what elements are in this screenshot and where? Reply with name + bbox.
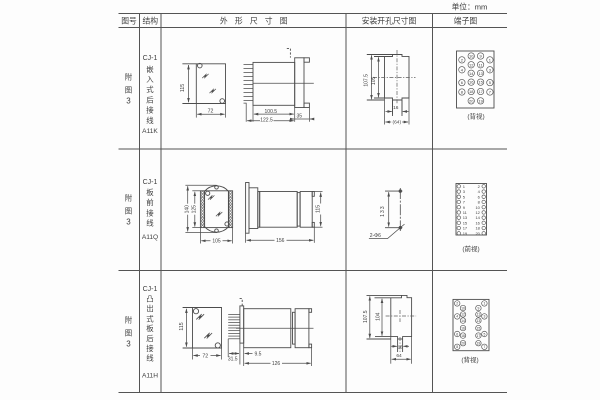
svg-text:图: 图 bbox=[125, 85, 132, 94]
svg-text:140: 140 bbox=[184, 205, 190, 214]
svg-text:附: 附 bbox=[125, 315, 133, 324]
svg-text:8: 8 bbox=[461, 90, 464, 95]
svg-text:2: 2 bbox=[456, 302, 458, 306]
svg-text:CJ-1: CJ-1 bbox=[143, 179, 158, 186]
svg-text:133: 133 bbox=[380, 205, 386, 217]
svg-text:72: 72 bbox=[202, 353, 208, 359]
svg-text:单位：mm: 单位：mm bbox=[452, 2, 488, 12]
svg-text:2: 2 bbox=[461, 57, 464, 62]
svg-text:17: 17 bbox=[478, 89, 483, 94]
svg-text:9: 9 bbox=[477, 306, 479, 310]
svg-text:11: 11 bbox=[477, 313, 481, 317]
svg-text:式: 式 bbox=[146, 314, 154, 323]
svg-text:图: 图 bbox=[125, 207, 132, 216]
svg-text:7: 7 bbox=[489, 90, 492, 95]
svg-text:31.5: 31.5 bbox=[228, 357, 238, 363]
svg-text:(前视): (前视) bbox=[462, 244, 479, 253]
svg-text:线: 线 bbox=[146, 354, 154, 363]
svg-text:115: 115 bbox=[179, 322, 185, 330]
svg-text:19: 19 bbox=[463, 231, 468, 236]
svg-text:13: 13 bbox=[477, 319, 481, 323]
svg-text:(背视): (背视) bbox=[461, 355, 478, 364]
svg-text:4: 4 bbox=[461, 67, 464, 72]
svg-text:16: 16 bbox=[461, 326, 465, 330]
svg-text:附: 附 bbox=[125, 194, 133, 203]
svg-text:前: 前 bbox=[146, 198, 153, 207]
svg-text:接: 接 bbox=[146, 106, 154, 115]
svg-text:A11Q: A11Q bbox=[142, 234, 158, 241]
svg-text:122.5: 122.5 bbox=[260, 117, 273, 123]
svg-text:3: 3 bbox=[489, 67, 492, 72]
svg-text:16: 16 bbox=[398, 344, 403, 349]
svg-text:19: 19 bbox=[478, 98, 483, 103]
svg-text:入: 入 bbox=[146, 75, 154, 84]
svg-text:105: 105 bbox=[212, 239, 221, 245]
svg-text:18: 18 bbox=[461, 334, 465, 338]
svg-text:12: 12 bbox=[469, 62, 474, 67]
svg-text:出: 出 bbox=[146, 304, 153, 313]
svg-text:8: 8 bbox=[456, 345, 458, 349]
svg-text:安装开孔尺寸图: 安装开孔尺寸图 bbox=[362, 15, 417, 25]
svg-text:115: 115 bbox=[316, 205, 322, 213]
svg-text:7: 7 bbox=[483, 345, 485, 349]
svg-text:18: 18 bbox=[469, 89, 474, 94]
svg-text:线: 线 bbox=[146, 219, 154, 228]
svg-text:图: 图 bbox=[125, 329, 132, 338]
svg-text:接: 接 bbox=[146, 208, 154, 217]
svg-text:6: 6 bbox=[461, 80, 464, 85]
svg-text:后: 后 bbox=[146, 95, 154, 104]
svg-text:3: 3 bbox=[483, 315, 485, 319]
svg-text:外 形 尺 寸 图: 外 形 尺 寸 图 bbox=[220, 15, 290, 25]
svg-text:20: 20 bbox=[469, 98, 474, 103]
svg-text:156: 156 bbox=[276, 238, 285, 244]
svg-text:16: 16 bbox=[469, 80, 474, 85]
svg-text:104: 104 bbox=[376, 312, 382, 321]
svg-text:后: 后 bbox=[146, 334, 154, 343]
svg-text:19: 19 bbox=[477, 342, 481, 346]
svg-text:125: 125 bbox=[192, 205, 198, 214]
svg-text:115: 115 bbox=[180, 84, 186, 92]
svg-text:图号: 图号 bbox=[121, 16, 137, 25]
svg-text:9.5: 9.5 bbox=[255, 351, 262, 357]
svg-text:12: 12 bbox=[461, 313, 465, 317]
svg-text:14: 14 bbox=[469, 71, 474, 76]
svg-text:接: 接 bbox=[146, 344, 154, 353]
svg-text:结构: 结构 bbox=[143, 15, 159, 25]
svg-text:3: 3 bbox=[126, 340, 131, 349]
svg-text:6: 6 bbox=[456, 332, 458, 336]
svg-text:板: 板 bbox=[146, 188, 154, 197]
svg-text:CJ-1: CJ-1 bbox=[143, 286, 158, 293]
svg-text:13: 13 bbox=[478, 71, 483, 76]
svg-text:72: 72 bbox=[208, 109, 214, 115]
svg-text:式: 式 bbox=[146, 85, 154, 94]
svg-text:2-Φ6: 2-Φ6 bbox=[370, 233, 381, 239]
svg-text:嵌: 嵌 bbox=[146, 65, 154, 74]
svg-text:17: 17 bbox=[477, 334, 481, 338]
svg-text:126: 126 bbox=[272, 361, 281, 367]
svg-text:3: 3 bbox=[126, 96, 131, 105]
svg-text:5: 5 bbox=[489, 80, 492, 85]
svg-text:板: 板 bbox=[146, 324, 154, 333]
svg-text:107.5: 107.5 bbox=[363, 310, 369, 323]
svg-text:105: 105 bbox=[371, 77, 377, 86]
svg-text:11: 11 bbox=[479, 62, 484, 67]
svg-text:(背视): (背视) bbox=[467, 111, 484, 120]
svg-text:9: 9 bbox=[479, 54, 482, 59]
svg-text:64: 64 bbox=[396, 353, 402, 359]
svg-text:A11H: A11H bbox=[142, 373, 158, 380]
svg-text:16: 16 bbox=[393, 105, 399, 111]
svg-text:14: 14 bbox=[461, 319, 465, 323]
svg-text:CJ-1: CJ-1 bbox=[143, 55, 158, 62]
svg-text:35: 35 bbox=[297, 114, 303, 120]
svg-text:10: 10 bbox=[469, 54, 474, 59]
svg-text:5: 5 bbox=[483, 332, 485, 336]
svg-text:1: 1 bbox=[489, 57, 492, 62]
svg-text:A11K: A11K bbox=[142, 128, 158, 135]
svg-text:1: 1 bbox=[483, 302, 485, 306]
svg-text:107.5: 107.5 bbox=[363, 74, 369, 87]
svg-text:20: 20 bbox=[475, 231, 480, 236]
svg-text:15: 15 bbox=[477, 326, 481, 330]
svg-text:3: 3 bbox=[126, 218, 131, 227]
svg-text:线: 线 bbox=[146, 116, 154, 125]
svg-text:15: 15 bbox=[478, 80, 483, 85]
svg-text:端子图: 端子图 bbox=[454, 15, 478, 25]
svg-text:10: 10 bbox=[461, 306, 465, 310]
svg-text:凸: 凸 bbox=[146, 294, 153, 303]
svg-text:附: 附 bbox=[125, 72, 133, 81]
svg-text:100.5: 100.5 bbox=[265, 109, 278, 115]
svg-text:(64): (64) bbox=[393, 120, 402, 126]
svg-text:20: 20 bbox=[461, 342, 465, 346]
svg-text:4: 4 bbox=[456, 315, 458, 319]
